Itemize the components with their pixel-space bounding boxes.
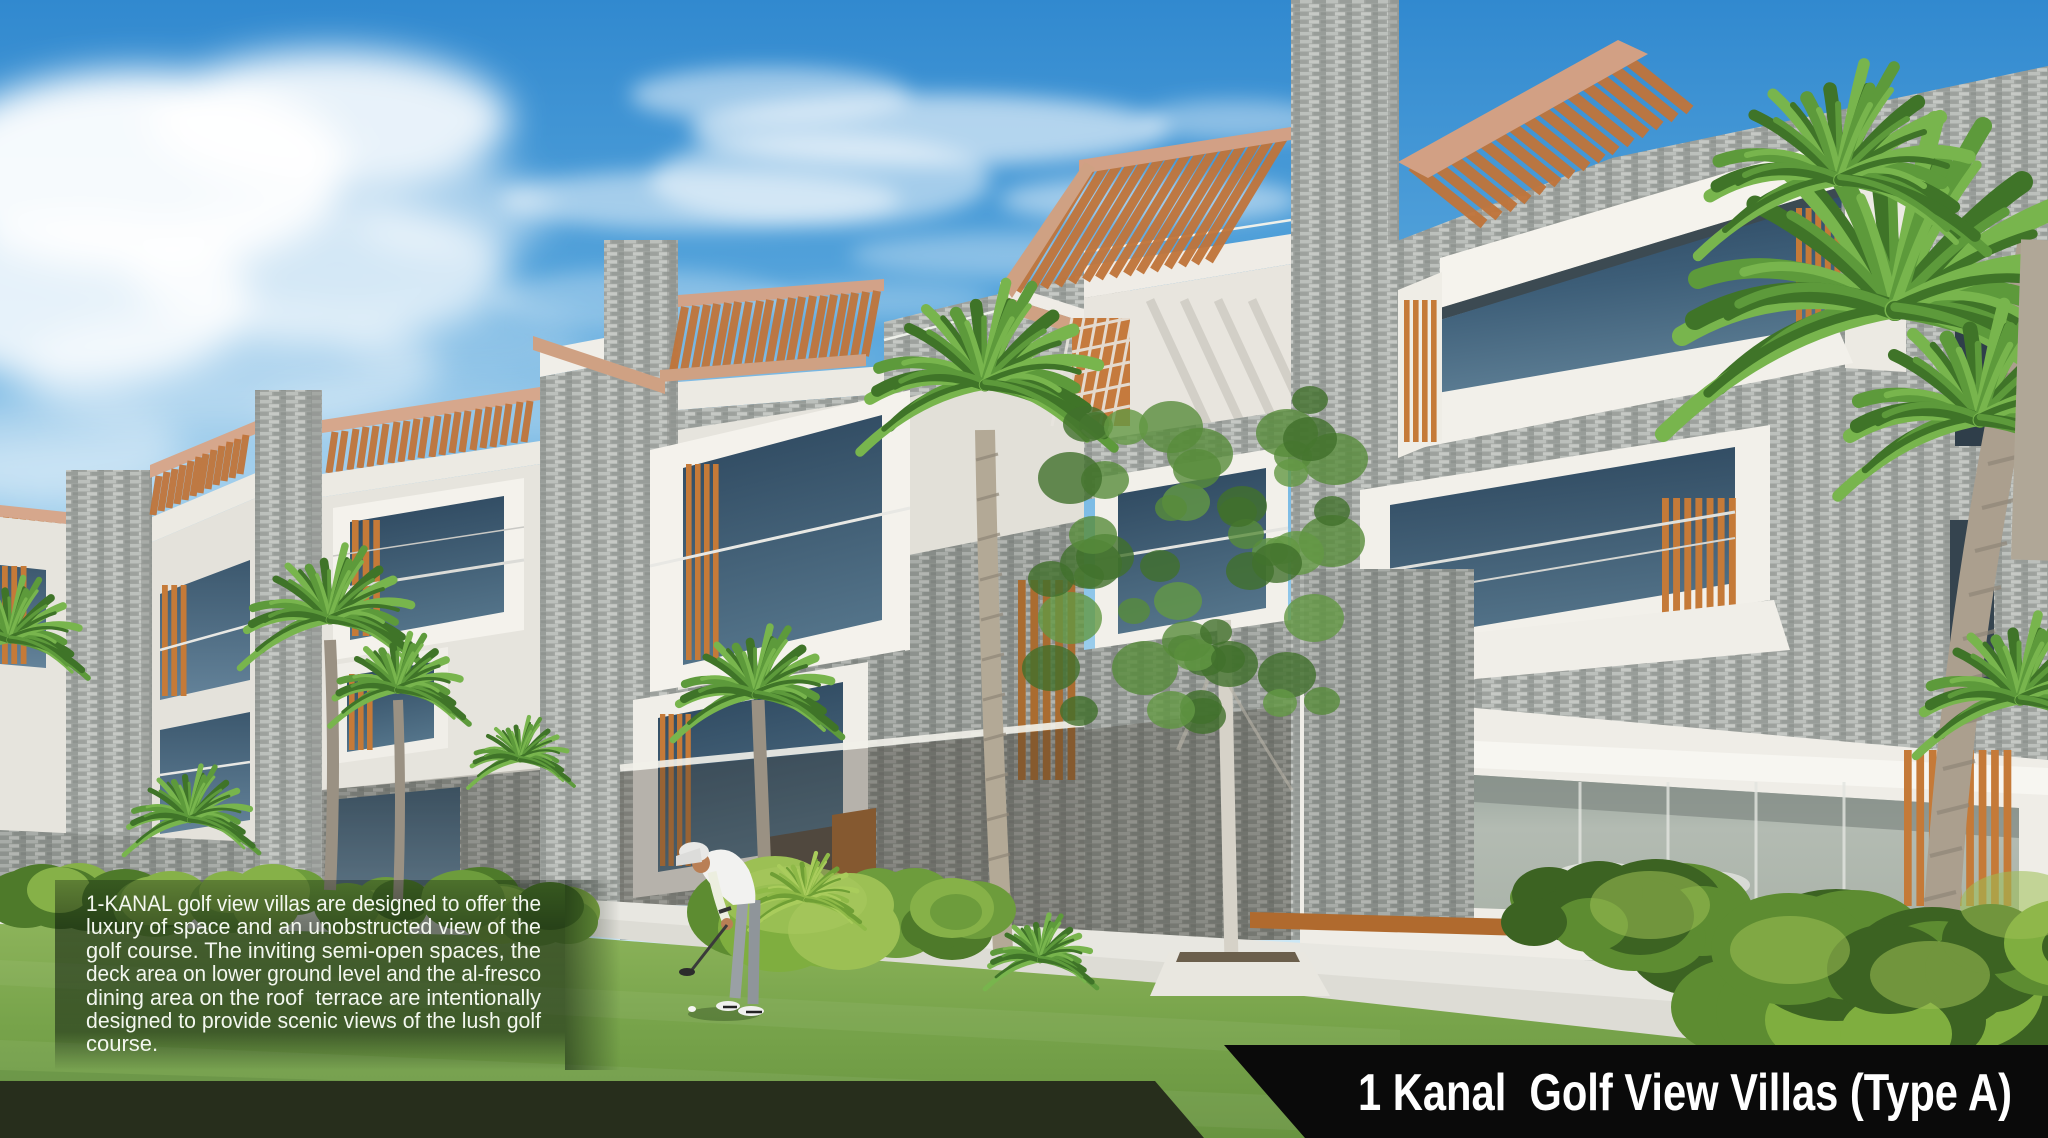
svg-text:1 Kanal Golf View Villas (Typ: 1 Kanal Golf View Villas (Type A) [1358,1064,2012,1122]
svg-text:designed to provide scenic vie: designed to provide scenic views of the … [86,1008,542,1033]
svg-text:dining area on the roof terra: dining area on the roof terrace are inte… [86,985,541,1010]
svg-text:golf course. The inviting semi: golf course. The inviting semi-open spac… [86,938,541,963]
svg-text:deck area on lower ground leve: deck area on lower ground level and the … [86,961,541,986]
svg-text:course.: course. [86,1031,158,1056]
svg-text:luxury of space and an unobstr: luxury of space and an unobstructed view… [86,914,541,939]
svg-text:1-KANAL golf view villas are d: 1-KANAL golf view villas are designed to… [86,891,541,916]
